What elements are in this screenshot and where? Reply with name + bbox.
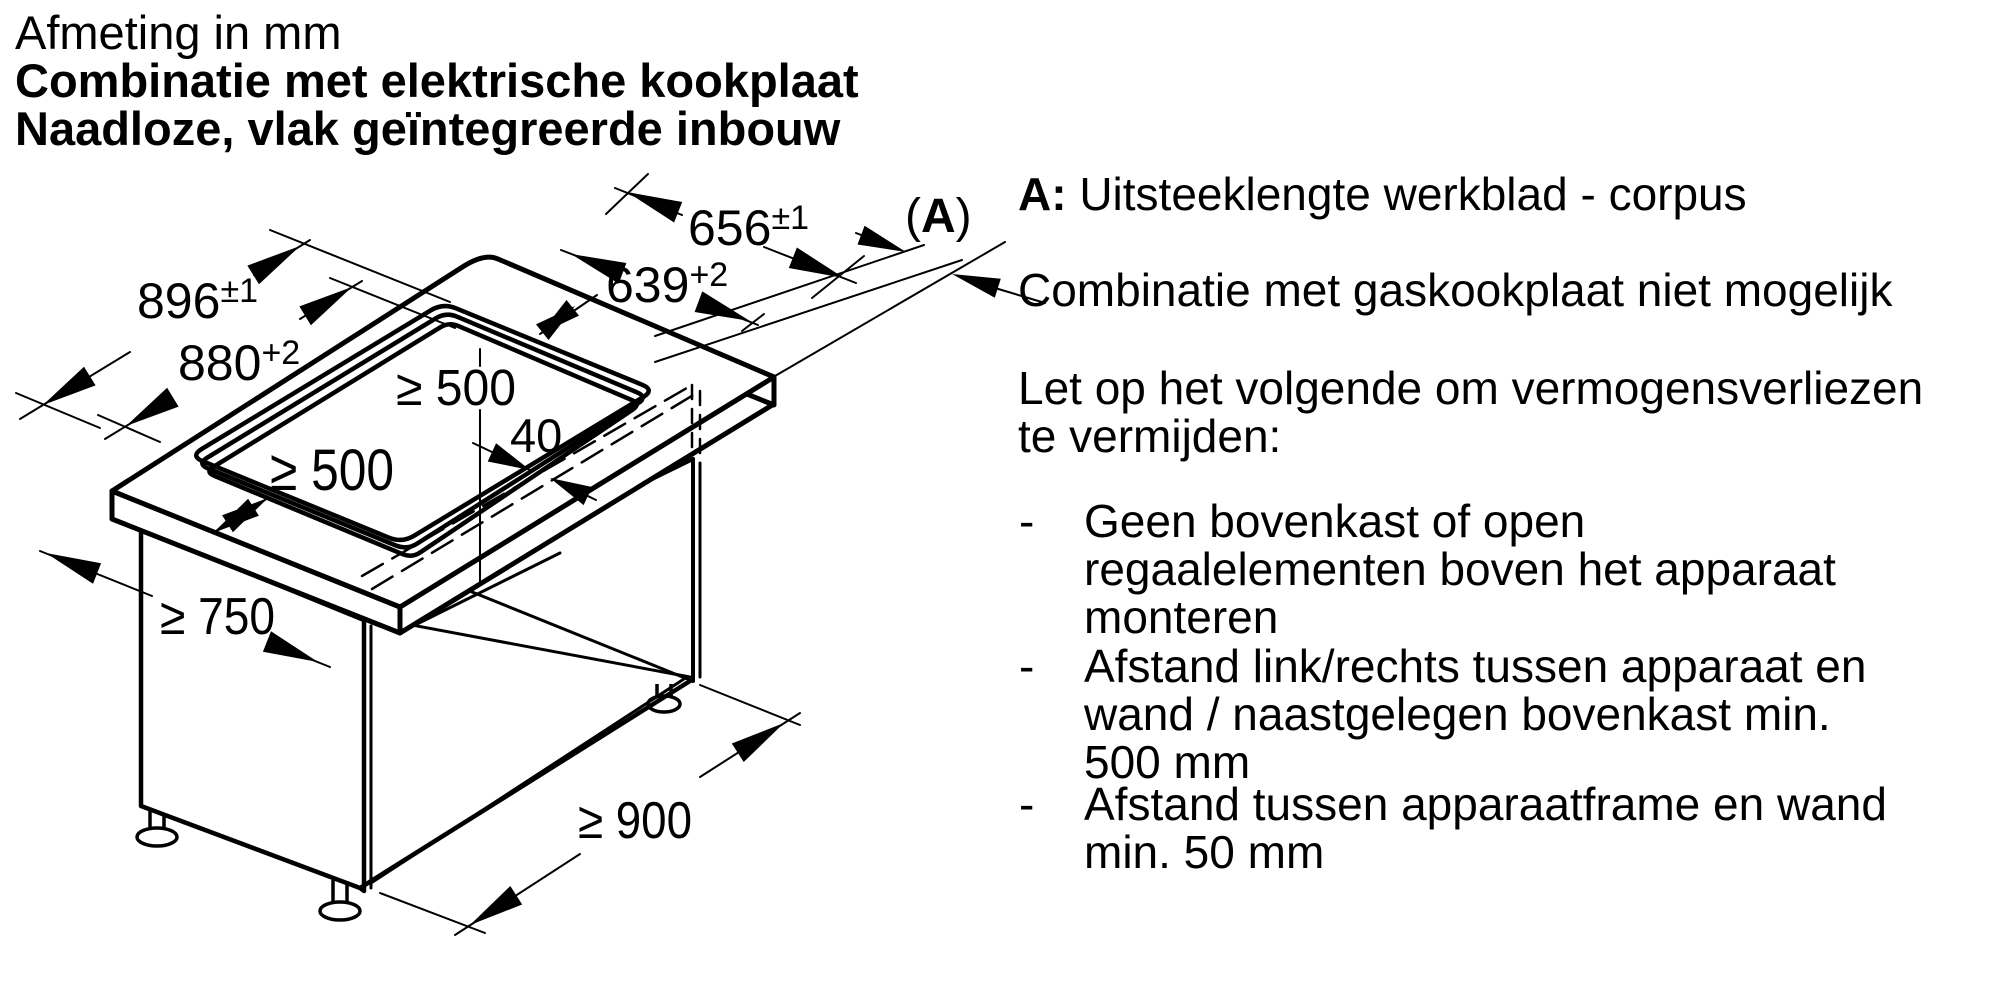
svg-text:656±1: 656±1 <box>688 199 809 256</box>
svg-text:≥ 500: ≥ 500 <box>396 359 516 416</box>
svg-text:≥ 900: ≥ 900 <box>578 792 692 850</box>
svg-text:≥ 500: ≥ 500 <box>270 438 394 503</box>
svg-text:≥ 750: ≥ 750 <box>160 588 275 646</box>
svg-text:(A): (A) <box>905 190 972 243</box>
svg-text:896±1: 896±1 <box>137 272 258 329</box>
svg-text:40: 40 <box>510 409 562 462</box>
